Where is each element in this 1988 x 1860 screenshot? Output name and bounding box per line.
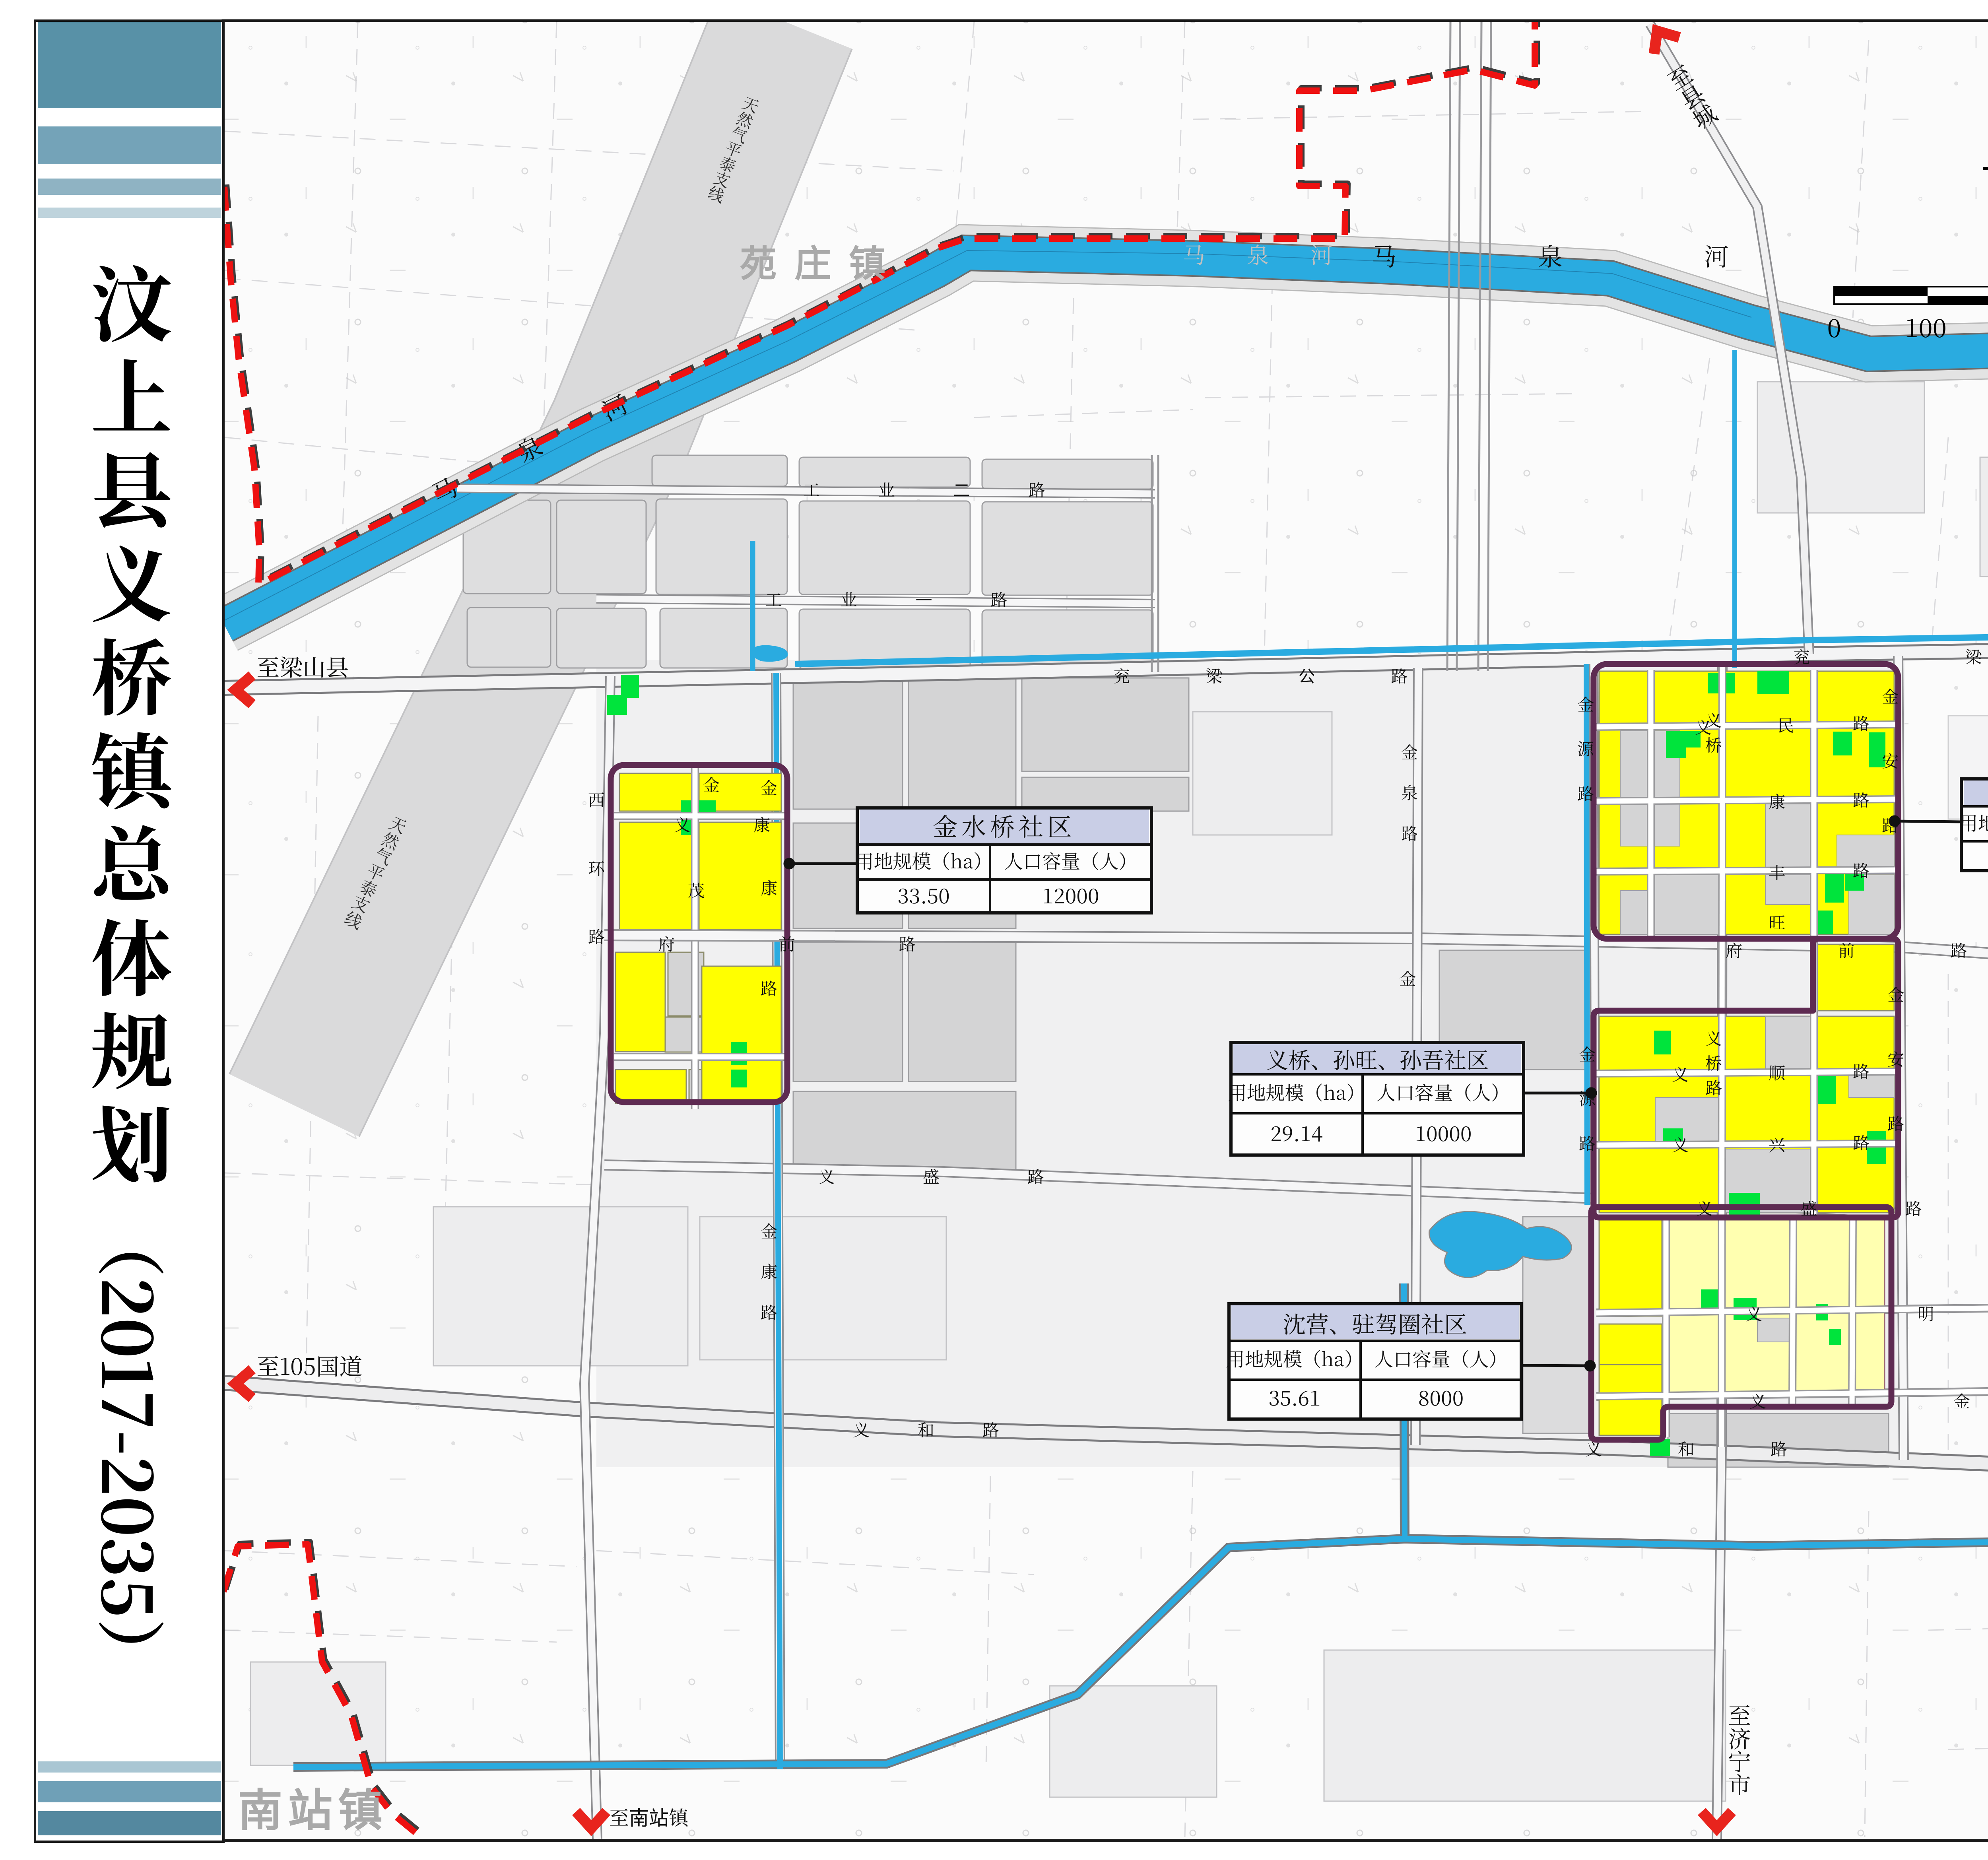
svg-text:人口容量（人）: 人口容量（人）: [1004, 847, 1138, 874]
svg-text:兴: 兴: [1769, 1132, 1785, 1156]
svg-text:至南站镇: 至南站镇: [609, 1802, 689, 1831]
svg-text:至济宁市: 至济宁市: [1723, 1704, 1756, 1796]
svg-text:29.14: 29.14: [1270, 1117, 1322, 1147]
svg-text:用地规模（ha）: 用地规模（ha）: [1228, 1078, 1366, 1105]
svg-text:至105国道: 至105国道: [256, 1348, 362, 1382]
svg-text:金源路: 金源路: [1575, 1046, 1599, 1179]
svg-text:路: 路: [1853, 1130, 1870, 1154]
svg-text:兖 梁 公 路: 兖 梁 公 路: [1793, 645, 1988, 668]
svg-text:沈营、驻驾圈社区: 沈营、驻驾圈社区: [1283, 1306, 1467, 1340]
svg-text:康: 康: [1769, 789, 1785, 813]
svg-text:至梁山县: 至梁山县: [256, 649, 349, 683]
svg-text:府 前 路: 府 前 路: [1726, 938, 1988, 962]
svg-text:用地规模（ha）: 用地规模（ha）: [855, 847, 993, 874]
svg-text:义桥路: 义桥路: [1702, 1030, 1726, 1104]
svg-text:100: 100: [1905, 308, 1947, 345]
svg-text:金康路: 金康路: [757, 779, 781, 1080]
svg-text:旺: 旺: [1769, 910, 1785, 934]
svg-text:顺: 顺: [1769, 1060, 1785, 1084]
svg-text:路: 路: [1853, 858, 1870, 882]
svg-text:路: 路: [1853, 788, 1870, 812]
svg-text:义: 义: [1672, 1062, 1689, 1086]
svg-text:工 业 二 路: 工 业 二 路: [803, 478, 1072, 501]
svg-text:金安路: 金安路: [1884, 986, 1908, 1179]
svg-text:金水桥社区: 金水桥社区: [933, 808, 1076, 843]
svg-text:义: 义: [1672, 1132, 1689, 1156]
svg-text:金: 金: [703, 773, 720, 796]
svg-text:用地规模（ha）: 用地规模（ha）: [1959, 808, 1988, 836]
svg-text:路: 路: [1853, 1059, 1870, 1083]
svg-text:金源路: 金源路: [1574, 696, 1598, 829]
svg-text:兖 梁 公 路: 兖 梁 公 路: [1113, 664, 1443, 687]
svg-text:西环路: 西环路: [584, 791, 608, 996]
svg-text:10000: 10000: [1415, 1117, 1472, 1147]
svg-text:义桥、孙旺、孙吾社区: 义桥、孙旺、孙吾社区: [1266, 1043, 1489, 1075]
svg-text:义桥: 义桥: [1702, 712, 1726, 761]
svg-text:0: 0: [1827, 308, 1841, 345]
svg-text:金安路: 金安路: [1878, 688, 1902, 881]
svg-text:工 业 一 路: 工 业 一 路: [765, 587, 1034, 611]
svg-text:33.50: 33.50: [897, 880, 949, 909]
svg-text:用地规模（ha）: 用地规模（ha）: [1226, 1344, 1364, 1372]
svg-text:义 盛 路: 义 盛 路: [818, 1164, 1086, 1188]
svg-text:丰: 丰: [1769, 860, 1785, 884]
svg-text:义: 义: [674, 812, 691, 836]
svg-text:12000: 12000: [1042, 880, 1099, 909]
svg-text:路: 路: [1853, 711, 1870, 735]
svg-text:义 和 路: 义 和 路: [1585, 1437, 1823, 1460]
svg-text:马 泉 河: 马 泉 河: [1183, 238, 1351, 270]
svg-text:义 盛 路: 义 盛 路: [1696, 1196, 1964, 1220]
svg-text:马 泉 河: 马 泉 河: [1372, 237, 1796, 273]
svg-text:苑庄镇: 苑庄镇: [740, 234, 903, 287]
svg-text:35.61: 35.61: [1268, 1382, 1320, 1412]
svg-text:金泉路: 金泉路: [1398, 744, 1421, 865]
svg-text:茂: 茂: [688, 878, 705, 902]
svg-text:民: 民: [1777, 713, 1794, 737]
svg-text:汶上县义桥镇总体规划: 汶上县义桥镇总体规划: [73, 262, 190, 1196]
svg-text:义 金 路: 义 金 路: [1749, 1389, 1988, 1413]
svg-text:义 和 路: 义 和 路: [853, 1417, 1021, 1441]
svg-text:义 明 路: 义 明 路: [1745, 1301, 1988, 1325]
svg-text:府 前 路: 府 前 路: [658, 932, 965, 955]
svg-text:人口容量（人）: 人口容量（人）: [1376, 1078, 1510, 1105]
svg-text:（2017-2035）: （2017-2035）: [82, 1209, 181, 1686]
svg-text:8000: 8000: [1418, 1382, 1464, 1412]
svg-text:人口容量（人）: 人口容量（人）: [1374, 1344, 1508, 1372]
svg-text:南站镇: 南站镇: [238, 1775, 388, 1839]
svg-text:金康路: 金康路: [757, 1223, 781, 1344]
